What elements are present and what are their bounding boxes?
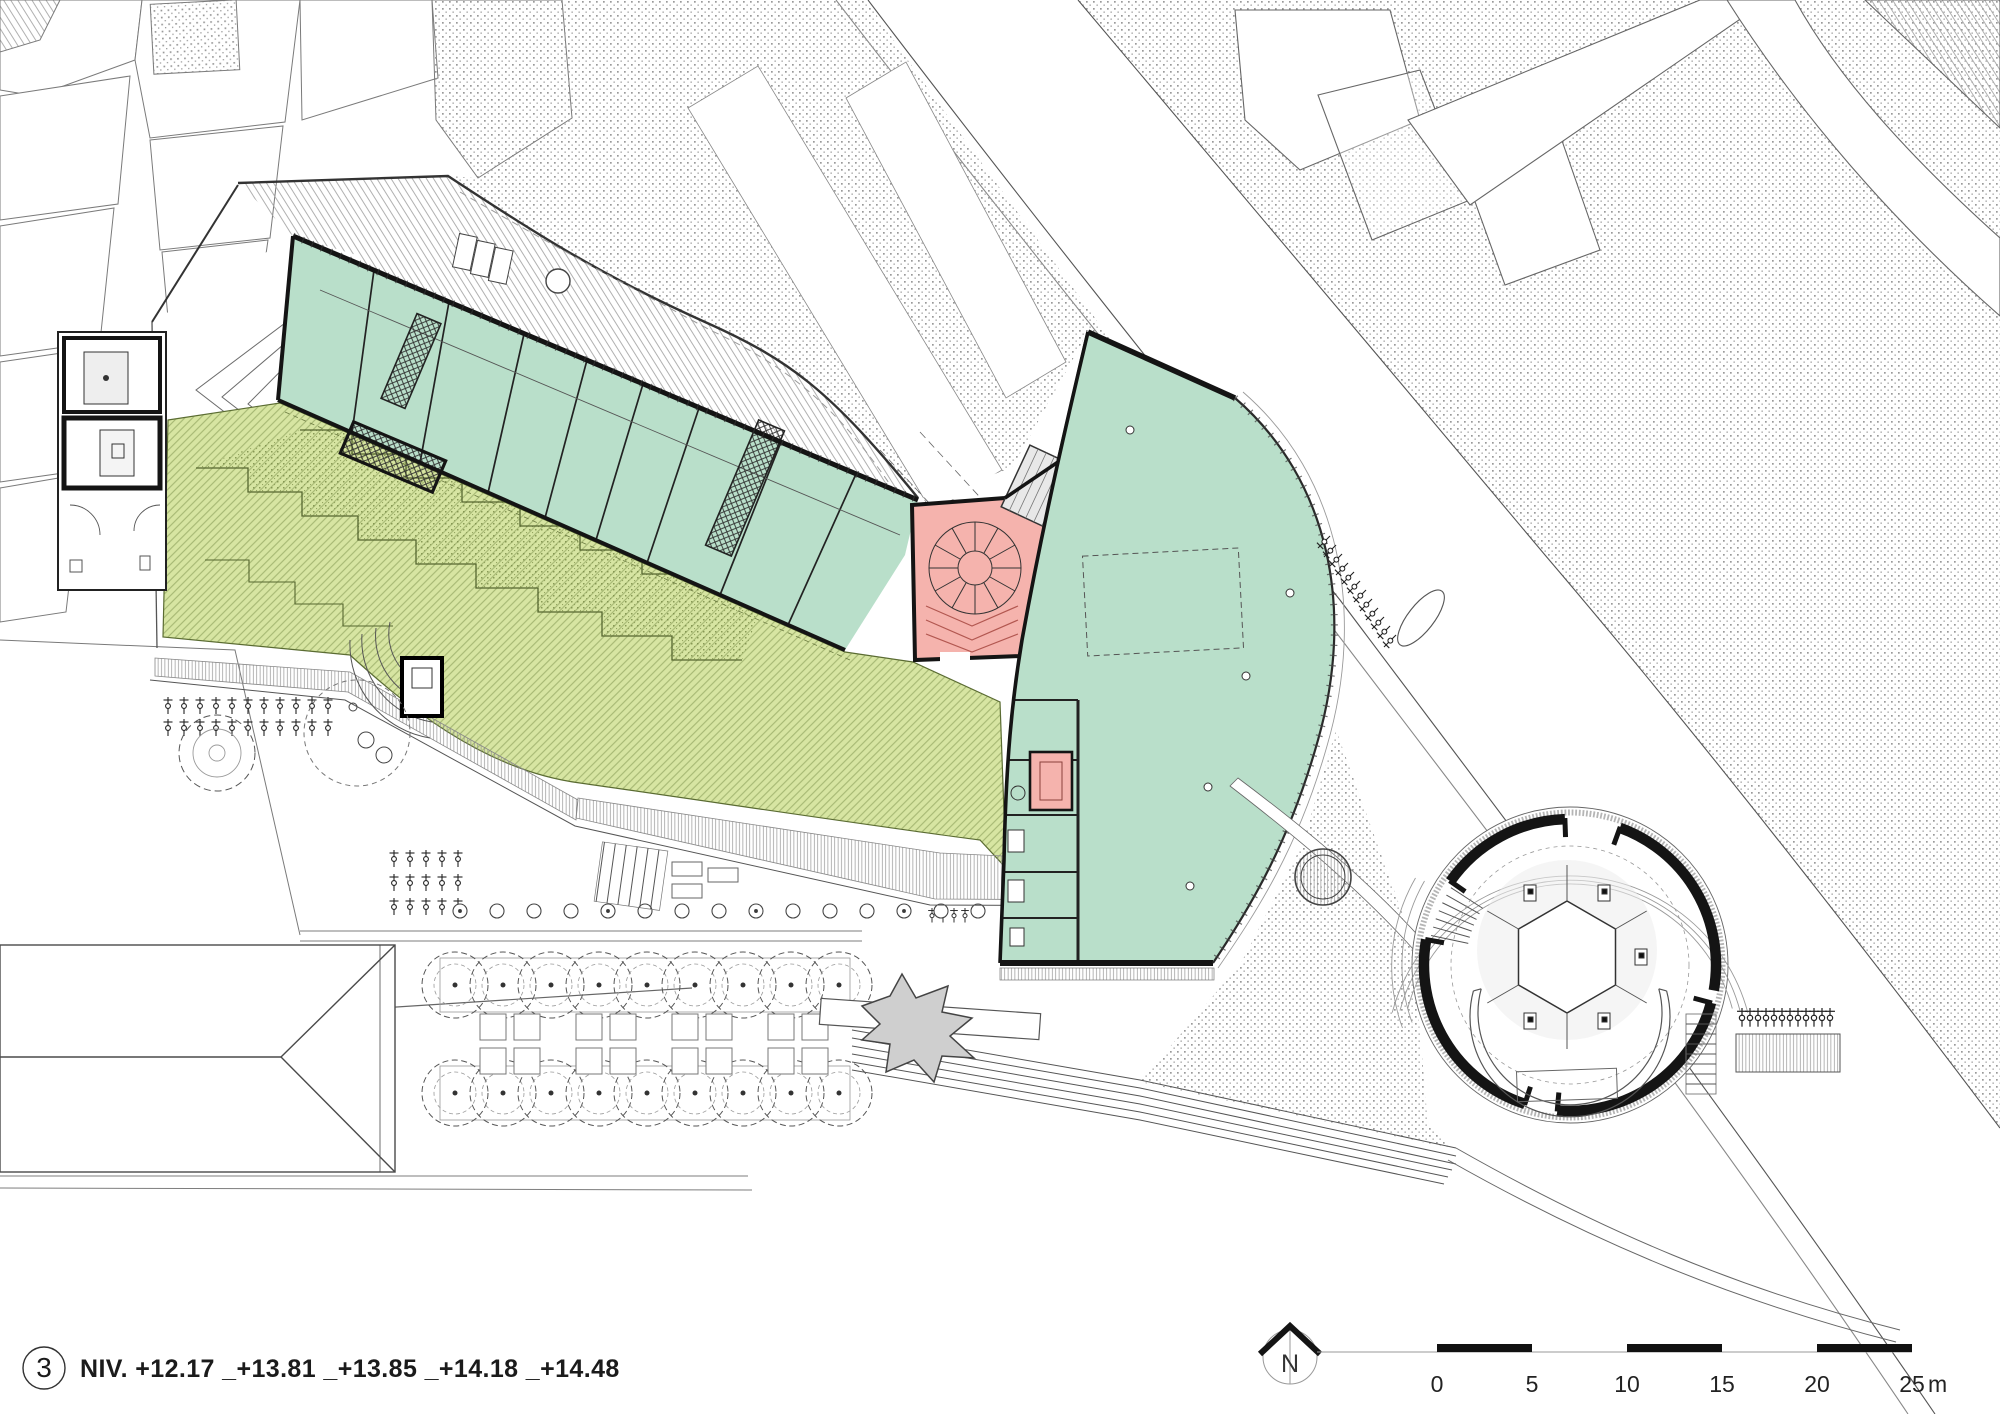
north-arrow: N — [1260, 1326, 1320, 1384]
site-plan-drawing: 3 NIV. +12.17 _+13.81 _+13.85 _+14.18 _+… — [0, 0, 2000, 1414]
elevator-room — [1030, 752, 1072, 810]
scale-tick: 15 — [1709, 1371, 1735, 1397]
garden-stair — [594, 842, 668, 911]
tree-row-north — [422, 952, 872, 1018]
scale-bar: 0 5 10 15 20 25 m — [1317, 1344, 1947, 1397]
scale-tick: 10 — [1614, 1371, 1640, 1397]
scale-unit: m — [1928, 1371, 1947, 1397]
scale-tick: 20 — [1804, 1371, 1830, 1397]
roof-skylight — [546, 269, 570, 293]
circular-pavilion — [1392, 807, 1840, 1123]
south-facade-band — [1000, 968, 1214, 980]
picnic-tables — [480, 1014, 828, 1074]
canopy-posts — [453, 904, 1022, 918]
title-bar: 3 NIV. +12.17 _+13.81 _+13.85 _+14.18 _+… — [23, 1326, 1947, 1397]
terrace-tree-rows — [422, 952, 872, 1126]
traffic-island — [1390, 583, 1452, 653]
north-label: N — [1281, 1350, 1299, 1378]
scale-tick: 0 — [1431, 1371, 1444, 1397]
garden-benches — [672, 862, 738, 898]
service-annex-west — [58, 332, 166, 590]
round-planter — [1295, 849, 1351, 905]
sheet-number: 3 — [36, 1352, 52, 1383]
scale-tick: 5 — [1526, 1371, 1539, 1397]
east-fence — [1736, 1008, 1840, 1072]
scale-tick: 25 — [1899, 1371, 1925, 1397]
level-caption: NIV. +12.17 _+13.81 _+13.85 _+14.18 _+14… — [80, 1355, 620, 1383]
floor-plan-sheet: 3 NIV. +12.17 _+13.81 _+13.85 _+14.18 _+… — [0, 0, 2000, 1414]
hip-roof-building — [0, 945, 395, 1172]
promenade-curves — [1448, 1148, 1900, 1342]
door-gap — [940, 652, 970, 664]
